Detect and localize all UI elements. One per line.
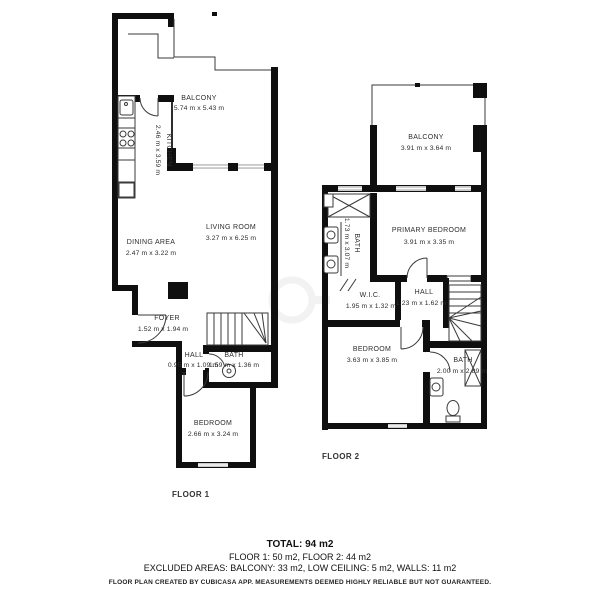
room-label-foyer: FOYER bbox=[154, 315, 180, 322]
floor1-plan: BALCONY 5.74 m x 5.43 m KITCHEN 2.46 m x… bbox=[112, 12, 278, 499]
room-label-kitchen: KITCHEN bbox=[165, 134, 172, 167]
floor-areas-text: FLOOR 1: 50 m2, FLOOR 2: 44 m2 bbox=[0, 552, 600, 562]
room-dims-bath-lower: 2.00 m x 2.89 m bbox=[437, 368, 487, 375]
room-dims-bath-upper: 1.73 m x 3.07 m bbox=[343, 218, 350, 268]
toilet-icon bbox=[446, 401, 460, 423]
floor1-label: FLOOR 1 bbox=[172, 490, 210, 499]
floor-plan-page: BALCONY 5.74 m x 5.43 m KITCHEN 2.46 m x… bbox=[0, 0, 600, 600]
excluded-areas-text: EXCLUDED AREAS: BALCONY: 33 m2, LOW CEIL… bbox=[0, 563, 600, 573]
floor1-stairs bbox=[207, 313, 268, 345]
room-dims-bath-f1: 1.59 m x 1.36 m bbox=[209, 362, 259, 369]
room-label-hall-f1: HALL bbox=[185, 352, 204, 359]
room-label-living-room: LIVING ROOM bbox=[206, 224, 256, 231]
room-label-bath-lower: BATH bbox=[453, 357, 472, 364]
room-label-primary-bedroom: PRIMARY BEDROOM bbox=[392, 227, 466, 234]
floor2-label: FLOOR 2 bbox=[322, 452, 360, 461]
room-dims-bedroom-f2: 3.63 m x 3.85 m bbox=[347, 357, 397, 364]
room-dims-living-room: 3.27 m x 6.25 m bbox=[206, 235, 256, 242]
room-label-bedroom-f2: BEDROOM bbox=[353, 346, 391, 353]
room-label-hall-f2: HALL bbox=[415, 289, 434, 296]
room-dims-hall-f2: 1.23 m x 1.62 m bbox=[396, 300, 446, 307]
floor1-balcony-outline bbox=[128, 19, 271, 70]
room-label-balcony-f2: BALCONY bbox=[408, 134, 444, 141]
room-label-bedroom-f1: BEDROOM bbox=[194, 420, 232, 427]
total-area-text: TOTAL: 94 m2 bbox=[0, 539, 600, 550]
room-dims-balcony-f1: 5.74 m x 5.43 m bbox=[174, 105, 224, 112]
room-dims-bedroom-f1: 2.66 m x 3.24 m bbox=[188, 431, 238, 438]
room-label-wic: W.I.C. bbox=[360, 292, 381, 299]
room-dims-balcony-f2: 3.91 m x 3.64 m bbox=[401, 145, 451, 152]
floor2-plan: BALCONY 3.91 m x 3.64 m PRIMARY BEDROOM … bbox=[322, 83, 487, 461]
room-label-bath-f1: BATH bbox=[224, 352, 243, 359]
room-dims-foyer: 1.52 m x 1.94 m bbox=[138, 326, 188, 333]
room-dims-dining-area: 2.47 m x 3.22 m bbox=[126, 250, 176, 257]
cubicasa-watermark-icon bbox=[272, 280, 330, 320]
area-summary: TOTAL: 94 m2 FLOOR 1: 50 m2, FLOOR 2: 44… bbox=[0, 539, 600, 593]
room-label-dining-area: DINING AREA bbox=[127, 239, 175, 246]
floor-plan-drawing: BALCONY 5.74 m x 5.43 m KITCHEN 2.46 m x… bbox=[0, 0, 600, 600]
room-label-balcony-f1: BALCONY bbox=[181, 95, 217, 102]
room-dims-wic: 1.95 m x 1.32 m bbox=[346, 303, 396, 310]
disclaimer-text: FLOOR PLAN CREATED BY CUBICASA APP. MEAS… bbox=[0, 579, 600, 586]
kitchen-counter-icon bbox=[118, 96, 135, 198]
floor2-stairs bbox=[449, 285, 481, 341]
room-dims-primary-bedroom: 3.91 m x 3.35 m bbox=[404, 239, 454, 246]
room-label-bath-upper: BATH bbox=[353, 233, 360, 252]
room-dims-kitchen: 2.46 m x 3.59 m bbox=[154, 125, 161, 175]
